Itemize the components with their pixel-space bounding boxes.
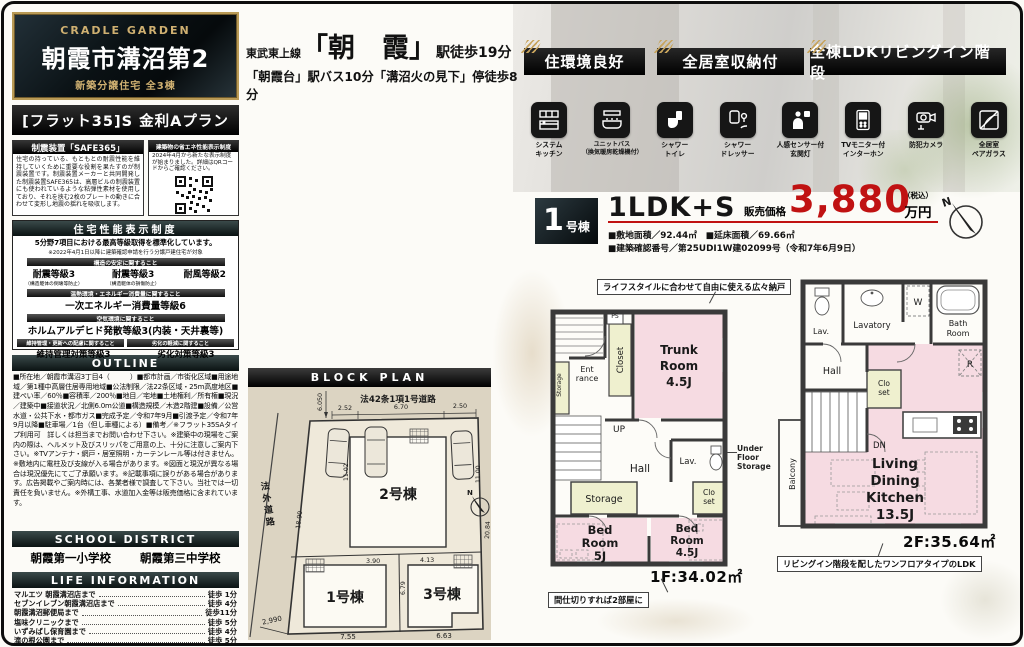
performance-section-durability: 劣化の軽減に関すること	[127, 339, 234, 347]
leader-dots	[89, 633, 205, 634]
amenity-item: TVモニター付 インターホン	[833, 102, 893, 159]
leader-dots	[82, 624, 205, 625]
svg-text:法: 法	[260, 480, 271, 493]
road-offset-dim: 6.050	[317, 393, 324, 411]
leader-dots	[99, 596, 205, 597]
train-line: 東武東上線	[246, 45, 301, 61]
catch-basin	[306, 559, 324, 572]
life-item: 塩味クリニックまで徒歩 5分	[14, 618, 237, 627]
washer-label: W	[914, 298, 923, 308]
amenity-item: シャワー トイレ	[645, 102, 705, 159]
badge-storage: 全居室収納付	[657, 48, 804, 75]
unit-suffix: 号棟	[566, 218, 590, 235]
amenity-icon-row: システム キッチン ユニットバス （換気暖房乾燥機付） シャワー トイレ	[519, 102, 1019, 159]
road-width-dim: 2,990	[261, 615, 282, 627]
amenity-item: シャワー ドレッサー	[708, 102, 768, 159]
unit-number: 1	[543, 206, 564, 236]
leader-dots	[118, 605, 205, 606]
hall-label-1f: Hall	[630, 463, 650, 475]
storage-left-label: Storage	[556, 373, 563, 397]
svg-text:Trunk: Trunk	[660, 343, 699, 357]
info-boxes-row: 制震装置「SAFE365」 住宅の持っている、もともとの耐震性能を維持していくた…	[12, 140, 239, 216]
under-floor-storage-pointer	[727, 452, 737, 453]
pair-glass-icon	[971, 102, 1007, 138]
callout-pointer	[878, 543, 884, 556]
floor-plan-1f: PS Closet Trunk Room 4.5J Storage Ent ra…	[543, 298, 735, 578]
photo-building-shape	[813, 4, 839, 192]
balcony-label: Balcony	[788, 458, 797, 490]
width-dim-2: 4.13	[420, 556, 434, 564]
area-detail-line: ■敷地面積／92.44㎡ ■延床面積／69.66㎡	[608, 228, 795, 241]
structure-grades: 耐震等級3 （構造躯体の倒壊等防止） 耐震等級3 （構造躯体の損傷防止） 耐風等…	[13, 267, 238, 287]
performance-section-maintenance: 維持管理・更新への配慮に関すること	[17, 339, 124, 347]
badge-environment: 住環境良好	[524, 48, 645, 75]
performance-lead: 5分野7項目における最高等級取得を標準化しています。	[13, 238, 238, 248]
sensor-light-icon	[782, 102, 818, 138]
svg-text:Bed: Bed	[588, 523, 613, 537]
price-value: 3,880	[789, 178, 911, 221]
life-information-section: LIFE INFORMATION マルエツ 朝霞溝沼店まで徒歩 1分 セブンイレ…	[12, 572, 239, 645]
seismic-device-box: 制震装置「SAFE365」 住宅の持っている、もともとの耐震性能を維持していくた…	[12, 140, 144, 216]
svg-text:N: N	[467, 489, 473, 497]
life-item: 滝の根公園まで徒歩 5分	[14, 636, 237, 645]
block-plan-header: BLOCK PLAN	[248, 368, 491, 387]
kitchen-counter	[903, 412, 981, 438]
performance-header: 住宅性能表示制度	[13, 221, 238, 236]
bathroom-label: Bath Room	[947, 319, 970, 338]
toilet-2f	[815, 288, 829, 315]
life-item: 朝霞溝沼郵便局まで徒歩11分	[14, 608, 237, 617]
svg-text:Clo: Clo	[703, 488, 715, 497]
leader-dots	[82, 615, 203, 616]
grade-wind: 耐風等級2	[184, 267, 226, 280]
bottom-dim-2: 6.63	[436, 632, 452, 640]
svg-text:道: 道	[263, 503, 274, 516]
junior-high-school: 朝霞第三中学校	[140, 550, 221, 566]
left-info-column: CRADLE GARDEN 朝霞市溝沼第2 新築分譲住宅 全3棟 [フラット35…	[12, 12, 239, 645]
system-kitchen-icon	[531, 102, 567, 138]
frontage-dim-1: 2.52	[338, 404, 352, 412]
brand-name: CRADLE GARDEN	[14, 24, 237, 37]
lavatory-label: Lavatory	[853, 321, 890, 331]
callout-trunk-room: ライフスタイルに合わせて自由に使える広々納戸	[597, 279, 791, 295]
school-header: SCHOOL DISTRICT	[12, 531, 239, 547]
svg-text:Room: Room	[660, 359, 698, 373]
svg-text:Room: Room	[582, 536, 619, 550]
hall-label-2f: Hall	[823, 366, 841, 377]
svg-text:13.5J: 13.5J	[876, 507, 914, 523]
tv-intercom-icon	[845, 102, 881, 138]
toilet-1f	[710, 446, 722, 470]
callout-partition: 間仕切りすれば2部屋に	[548, 592, 649, 608]
bus-access: 「朝霞台」駅バス10分「溝沼火の見下」停徒歩8分	[246, 67, 518, 103]
school-district-section: SCHOOL DISTRICT 朝霞第一小学校 朝霞第三中学校	[12, 531, 239, 566]
catch-basin	[410, 429, 428, 443]
energy-label-box: 建築物の省エネ性能表示制度 2024年4月から新たな表示制度が始まりました。詳細…	[148, 140, 239, 216]
price-unit: （税込） 万円	[903, 190, 933, 221]
closet-label: Closet	[616, 346, 626, 373]
leader-dots	[67, 642, 205, 643]
side-road-label: 法 外 道 路	[259, 479, 277, 528]
project-title: 朝霞市溝沼第2	[14, 39, 237, 74]
grade-seismic-2: 耐震等級3 （構造躯体の損傷防止）	[107, 267, 160, 287]
block-plan-drawing: 法 外 道 路 2,990 18.90 法42条1項1号道路 6.050 2.5…	[248, 387, 491, 640]
floor-plan-1f-svg: PS Closet Trunk Room 4.5J Storage Ent ra…	[543, 298, 735, 574]
lav-label-2f: Lav.	[813, 327, 829, 336]
amenity-item: 全居室 ペアガラス	[959, 102, 1019, 159]
parked-car	[365, 427, 387, 477]
unit-number-box: 1 号棟	[535, 198, 598, 244]
storage-mid-label: Storage	[585, 494, 622, 505]
svg-text:外: 外	[261, 491, 273, 504]
mid-dim: 6.79	[400, 581, 407, 595]
under-floor-storage-note: Under Floor Storage	[737, 444, 771, 471]
seismic-box-header: 制震装置「SAFE365」	[13, 141, 143, 154]
price-label: 販売価格	[744, 204, 786, 219]
project-plaque: CRADLE GARDEN 朝霞市溝沼第2 新築分譲住宅 全3棟	[12, 12, 239, 100]
svg-text:Living: Living	[872, 456, 918, 472]
amenity-item: ユニットバス （換気暖房乾燥機付）	[582, 102, 642, 159]
svg-text:Ent: Ent	[580, 365, 593, 374]
underfloor-closet-label: Clo set	[703, 488, 715, 506]
shower-toilet-icon	[657, 102, 693, 138]
callout-living-stairs: リビングイン階段を配したワンフロアタイプのLDK	[777, 556, 982, 572]
life-item: マルエツ 朝霞溝沼店まで徒歩 1分	[14, 590, 237, 599]
amenity-item: 防犯カメラ	[896, 102, 956, 159]
frontage-dim-2: 6.70	[394, 403, 408, 411]
ps-label: PS	[611, 313, 619, 320]
scan-smudge	[940, 560, 1024, 640]
unit-bath-icon	[594, 102, 630, 138]
parking-dim-2: 11.00	[475, 465, 482, 483]
life-item: いずみばし保育園まで徒歩 4分	[14, 627, 237, 636]
parking-dim-1: 11.02	[343, 463, 350, 481]
floor-plan-2f: Balcony	[775, 272, 993, 538]
width-dim-1: 3.90	[366, 557, 380, 565]
performance-note: ※2022年4月1日以降に建築確認申請を行う分譲戸建住宅が対象	[13, 248, 238, 256]
right-dim: 20.84	[484, 521, 491, 539]
housing-performance-box: 住宅性能表示制度 5分野7項目における最高等級取得を標準化しています。 ※202…	[12, 220, 239, 350]
project-subtitle: 新築分譲住宅 全3棟	[14, 77, 237, 92]
outline-section: OUTLINE ■所在地／朝霞市溝沼3丁目4（ ）■都市計画／市街化区域■用途地…	[12, 355, 239, 529]
block-plan-svg: 法 外 道 路 2,990 18.90 法42条1項1号道路 6.050 2.5…	[248, 387, 491, 640]
svg-text:rance: rance	[576, 374, 599, 383]
dn-label: DN	[873, 441, 886, 451]
svg-text:set: set	[878, 388, 890, 397]
svg-text:Room: Room	[947, 329, 970, 338]
qr-code	[174, 175, 214, 215]
floor-plan-2f-svg: Balcony	[775, 272, 993, 534]
bottom-dim-1: 7.55	[340, 633, 356, 640]
energy-box-body: 2024年4月から新たな表示制度が始まりました。詳細はQRコードからご確認くださ…	[149, 152, 238, 174]
catch-basin	[454, 555, 472, 568]
price-underline	[608, 221, 938, 223]
svg-text:Bath: Bath	[949, 319, 968, 328]
shower-dresser-icon	[720, 102, 756, 138]
building-1-label: 1号棟	[326, 589, 365, 606]
grade-energy: 一次エネルギー消費量等級6	[13, 298, 238, 312]
building-2-label: 2号棟	[379, 486, 418, 503]
svg-text:Clo: Clo	[878, 379, 890, 388]
up-label: UP	[613, 425, 626, 435]
seismic-box-body: 住宅の持っている、もともとの耐震性能を維持していくために重要な役割を果たすのが制…	[13, 154, 143, 211]
svg-text:Dining: Dining	[870, 473, 919, 489]
permit-detail-line: ■建築確認番号／第25UDI1W建02099号（令和7年6月9日）	[608, 241, 861, 254]
svg-text:4.5J: 4.5J	[676, 547, 699, 559]
energy-box-header: 建築物の省エネ性能表示制度	[149, 141, 238, 152]
amenity-item: システム キッチン	[519, 102, 579, 159]
life-item: セブンイレブン朝霞溝沼店まで徒歩 4分	[14, 599, 237, 608]
svg-text:路: 路	[265, 515, 277, 528]
walk-time: 駅徒歩19分	[436, 42, 511, 62]
station-name: 「朝 霞」	[301, 26, 436, 65]
grade-seismic-1: 耐震等級3 （構造躯体の倒壊等防止）	[25, 267, 83, 287]
closet-2f-label: Clo set	[878, 379, 890, 397]
svg-text:5J: 5J	[594, 549, 606, 563]
stairs-down	[803, 392, 867, 452]
grade-formaldehyde: ホルムアルデヒド発散等級3(内装・天井裏等)	[13, 323, 238, 337]
elementary-school: 朝霞第一小学校	[31, 550, 112, 566]
svg-text:4.5J: 4.5J	[666, 375, 692, 389]
bathtub	[937, 286, 979, 314]
lav-label-1f: Lav.	[679, 457, 696, 467]
performance-section-energy: 温熱環境・エネルギー消費量に関すること	[27, 289, 225, 297]
refrigerator-label: R	[967, 360, 973, 370]
security-camera-icon	[908, 102, 944, 138]
svg-text:Bed: Bed	[676, 523, 699, 535]
compass-icon: N	[936, 190, 992, 246]
performance-section-structure: 構造の安定に関すること	[27, 258, 225, 266]
frontage-dim-3: 2.50	[453, 402, 467, 410]
stairs-up	[553, 416, 601, 480]
flat35-banner: [フラット35]S 金利Aプラン	[12, 105, 239, 135]
badge-living-stairs: 全棟LDKリビングイン階段	[810, 48, 1006, 75]
parked-car	[451, 431, 474, 480]
area-2f: 2F:35.64㎡	[903, 531, 996, 552]
vanity-sink	[861, 290, 883, 306]
svg-text:Kitchen: Kitchen	[866, 490, 924, 506]
house-photo-background	[513, 4, 1020, 192]
station-access: 東武東上線 「朝 霞」 駅徒歩19分 「朝霞台」駅バス10分「溝沼火の見下」停徒…	[246, 26, 518, 103]
svg-text:Room: Room	[670, 535, 704, 547]
svg-text:set: set	[703, 497, 715, 506]
grade-durability: 劣化対策等級3	[158, 348, 215, 360]
floor-plan-type: 1LDK+S	[608, 192, 735, 223]
performance-section-pair: 維持管理・更新への配慮に関すること 劣化の軽減に関すること	[17, 339, 234, 347]
life-header: LIFE INFORMATION	[12, 572, 239, 588]
real-estate-flyer: CRADLE GARDEN 朝霞市溝沼第2 新築分譲住宅 全3棟 [フラット35…	[0, 0, 1024, 647]
building-3-label: 3号棟	[423, 586, 462, 603]
photo-building-shape	[551, 4, 679, 192]
amenity-item: 人感センサー付 玄関灯	[770, 102, 830, 159]
outline-body: ■所在地／朝霞市溝沼3丁目4（ ）■都市計画／市街化区域■用途地域／第1種中高層…	[12, 371, 239, 529]
performance-section-air: 空気環境に関すること	[27, 314, 225, 322]
svg-text:N: N	[940, 195, 953, 210]
